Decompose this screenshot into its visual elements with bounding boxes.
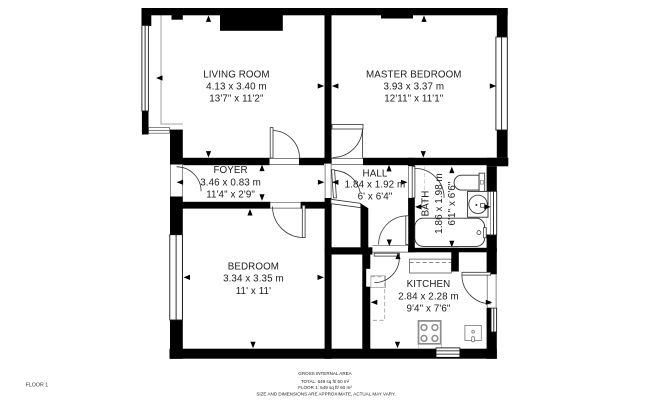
svg-text:2.84 x 2.28 m: 2.84 x 2.28 m	[398, 291, 459, 302]
svg-text:9'4" x 7'6": 9'4" x 7'6"	[407, 303, 451, 314]
svg-text:SIZE AND DIMENSIONS ARE APPROX: SIZE AND DIMENSIONS ARE APPROXIMATE, ACT…	[256, 392, 395, 397]
svg-text:GROSS INTERNAL AREA: GROSS INTERNAL AREA	[298, 371, 352, 376]
svg-text:3.93 x 3.37 m: 3.93 x 3.37 m	[383, 82, 444, 93]
svg-text:MASTER BEDROOM: MASTER BEDROOM	[366, 70, 462, 81]
svg-text:11' x 11': 11' x 11'	[236, 286, 271, 297]
svg-text:HALL: HALL	[363, 168, 388, 179]
svg-text:FOYER: FOYER	[213, 165, 247, 176]
svg-text:4.13 x 3.40 m: 4.13 x 3.40 m	[206, 82, 267, 93]
svg-text:11'4" x 2'9": 11'4" x 2'9"	[206, 190, 255, 201]
svg-text:TOTAL: 649 sq ft/ 60 m²: TOTAL: 649 sq ft/ 60 m²	[301, 379, 350, 384]
svg-text:BATH: BATH	[421, 191, 432, 217]
svg-text:LIVING ROOM: LIVING ROOM	[203, 70, 269, 81]
svg-text:1.84 x 1.92 m: 1.84 x 1.92 m	[345, 179, 406, 190]
svg-text:12'11" x 11'1": 12'11" x 11'1"	[384, 93, 444, 104]
svg-text:3.46 x 0.83 m: 3.46 x 0.83 m	[200, 178, 261, 189]
svg-text:1.86 x 1.98 m: 1.86 x 1.98 m	[434, 173, 445, 234]
svg-text:13'7" x 11'2": 13'7" x 11'2"	[209, 93, 264, 104]
svg-text:KITCHEN: KITCHEN	[407, 279, 451, 290]
svg-text:6' x 6'4": 6' x 6'4"	[358, 192, 393, 203]
svg-text:FLOOR 1: 649 sq ft/ 60 m²: FLOOR 1: 649 sq ft/ 60 m²	[298, 385, 352, 390]
svg-text:3.34 x 3.35 m: 3.34 x 3.35 m	[223, 274, 284, 285]
svg-text:FLOOR 1: FLOOR 1	[26, 382, 49, 388]
svg-text:6'1" x 6'6": 6'1" x 6'6"	[447, 181, 458, 225]
svg-text:BEDROOM: BEDROOM	[228, 262, 279, 273]
